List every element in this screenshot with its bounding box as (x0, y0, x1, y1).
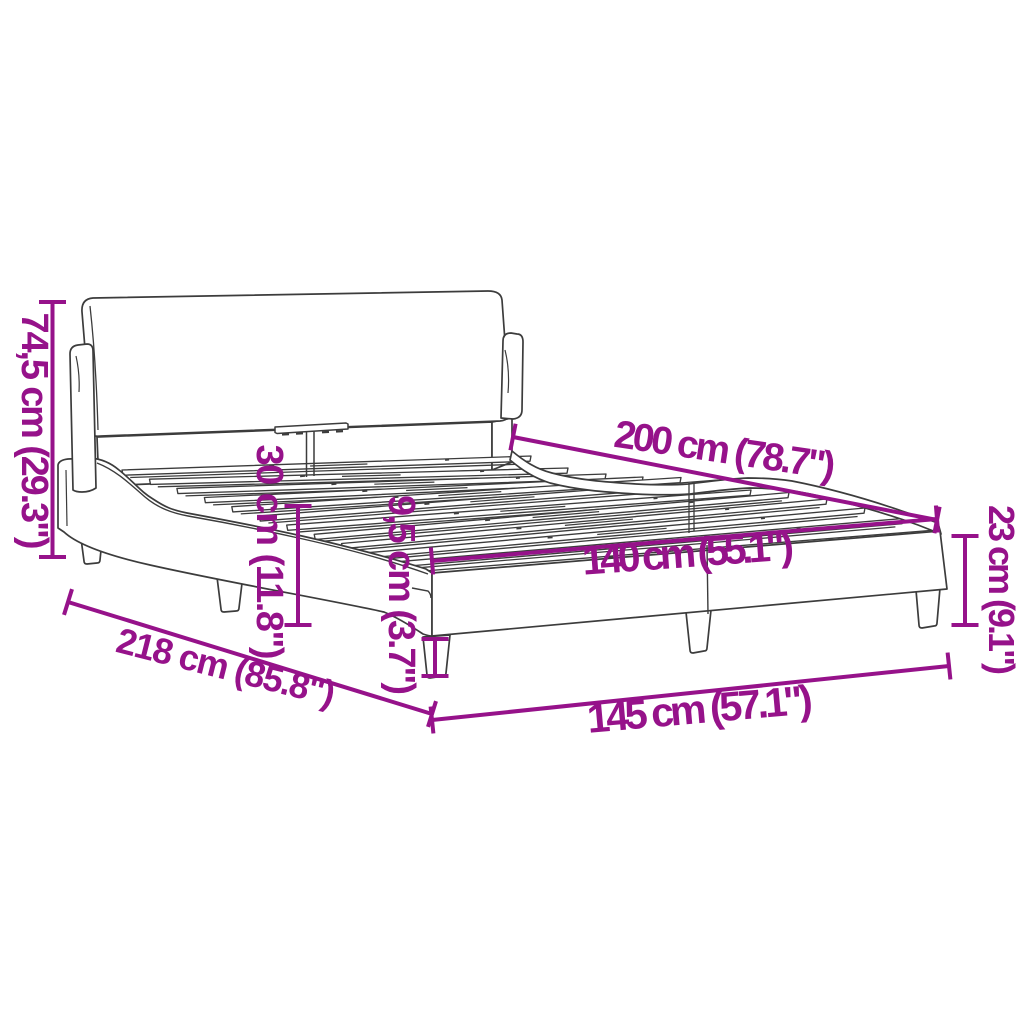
svg-text:30 cm (11.8"): 30 cm (11.8") (248, 445, 290, 660)
svg-text:9,5 cm (3.7"): 9,5 cm (3.7") (380, 495, 422, 695)
svg-text:23 cm (9.1"): 23 cm (9.1") (981, 505, 1022, 675)
svg-text:74,5 cm (29.3"): 74,5 cm (29.3") (13, 313, 55, 550)
